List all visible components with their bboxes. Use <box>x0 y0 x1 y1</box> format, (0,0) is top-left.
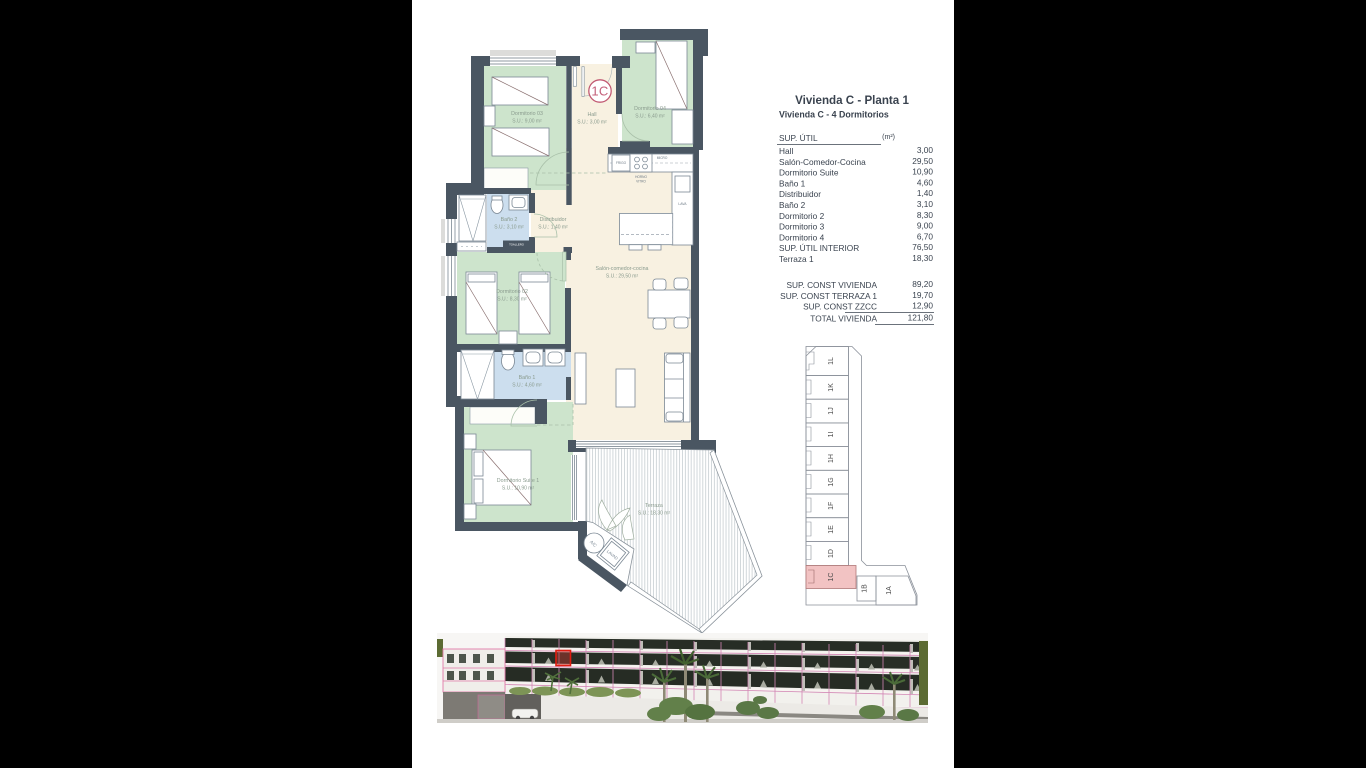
svg-text:12,90: 12,90 <box>912 301 933 311</box>
svg-text:HORNO: HORNO <box>635 175 647 179</box>
svg-text:1A: 1A <box>886 586 893 595</box>
svg-text:1H: 1H <box>828 454 835 463</box>
svg-text:MICRO: MICRO <box>657 156 668 160</box>
svg-text:1L: 1L <box>828 357 835 365</box>
svg-text:(m²): (m²) <box>882 134 895 141</box>
svg-text:Dormitorio 3: Dormitorio 3 <box>779 222 825 232</box>
svg-text:Distribuidor: Distribuidor <box>779 189 821 199</box>
svg-text:1G: 1G <box>828 477 835 486</box>
svg-text:Dormitorio 04: Dormitorio 04 <box>634 106 666 112</box>
svg-text:S.U.: 10,90 m²: S.U.: 10,90 m² <box>502 486 535 492</box>
svg-text:SUP. CONST VIVIENDA: SUP. CONST VIVIENDA <box>786 280 877 290</box>
svg-text:S.U.: 3,10 m²: S.U.: 3,10 m² <box>494 225 524 231</box>
svg-text:19,70: 19,70 <box>912 290 933 300</box>
svg-text:TOTAL VIVIENDA: TOTAL VIVIENDA <box>810 313 877 323</box>
svg-text:Dormitorio 03: Dormitorio 03 <box>511 111 543 117</box>
svg-text:1C: 1C <box>828 573 835 582</box>
svg-text:SUP. CONST ZZCC: SUP. CONST ZZCC <box>803 302 877 312</box>
svg-text:89,20: 89,20 <box>912 279 933 289</box>
svg-text:SUP. CONST TERRAZA 1: SUP. CONST TERRAZA 1 <box>780 291 877 301</box>
svg-text:Terraza: Terraza <box>645 503 663 509</box>
svg-text:Dormitorio Suite: Dormitorio Suite <box>779 168 839 178</box>
svg-text:Baño 1: Baño 1 <box>519 375 536 381</box>
svg-text:S.U.: 4,60 m²: S.U.: 4,60 m² <box>512 383 542 389</box>
svg-text:SUP. ÚTIL: SUP. ÚTIL <box>779 133 818 143</box>
svg-text:1D: 1D <box>828 549 835 558</box>
svg-text:Dormitorio 02: Dormitorio 02 <box>496 289 528 295</box>
svg-text:Vivienda C - Planta 1: Vivienda C - Planta 1 <box>795 94 909 107</box>
svg-text:TOALLERO: TOALLERO <box>509 242 525 246</box>
svg-text:Baño 2: Baño 2 <box>501 217 518 223</box>
svg-text:Distribuidor: Distribuidor <box>540 217 567 223</box>
svg-text:1,40: 1,40 <box>917 188 934 198</box>
svg-text:121,80: 121,80 <box>908 312 934 322</box>
svg-text:Baño 2: Baño 2 <box>779 200 806 210</box>
svg-text:8,30: 8,30 <box>917 210 934 220</box>
svg-text:Terraza 1: Terraza 1 <box>779 254 814 264</box>
svg-text:VITRO: VITRO <box>636 180 646 184</box>
svg-text:Vivienda C - 4 Dormitorios: Vivienda C - 4 Dormitorios <box>779 110 889 120</box>
svg-text:3,00: 3,00 <box>917 145 934 155</box>
svg-text:1F: 1F <box>828 502 835 510</box>
svg-text:76,50: 76,50 <box>912 242 933 252</box>
svg-text:1E: 1E <box>828 525 835 534</box>
svg-text:S.U.: 18,30 m²: S.U.: 18,30 m² <box>638 511 671 517</box>
svg-text:1J: 1J <box>828 407 835 414</box>
svg-text:1I: 1I <box>828 432 835 438</box>
svg-text:S.U.: 1,40 m²: S.U.: 1,40 m² <box>538 225 568 231</box>
svg-text:6,70: 6,70 <box>917 231 934 241</box>
svg-text:Hall: Hall <box>587 112 596 118</box>
svg-text:4,60: 4,60 <box>917 177 934 187</box>
svg-text:18,30: 18,30 <box>912 253 933 263</box>
svg-text:S.U.: 6,40 m²: S.U.: 6,40 m² <box>635 114 665 120</box>
svg-text:9,00: 9,00 <box>917 221 934 231</box>
svg-text:3,10: 3,10 <box>917 199 934 209</box>
svg-text:Baño 1: Baño 1 <box>779 178 806 188</box>
svg-text:S.U.: 9,00 m²: S.U.: 9,00 m² <box>512 119 542 125</box>
svg-text:S.U.: 29,50 m²: S.U.: 29,50 m² <box>606 274 639 280</box>
svg-text:Salón-Comedor-Cocina: Salón-Comedor-Cocina <box>779 157 866 167</box>
svg-text:10,90: 10,90 <box>912 167 933 177</box>
svg-text:1B: 1B <box>862 584 869 593</box>
svg-text:Dormitorio 4: Dormitorio 4 <box>779 232 825 242</box>
svg-text:FRIGO: FRIGO <box>616 161 627 165</box>
svg-text:Dormitorio Suite 1: Dormitorio Suite 1 <box>497 478 539 484</box>
svg-text:Salón-comedor-cocina: Salón-comedor-cocina <box>596 266 649 272</box>
svg-text:S.U.: 3,00 m²: S.U.: 3,00 m² <box>577 120 607 126</box>
svg-text:29,50: 29,50 <box>912 156 933 166</box>
svg-text:LAVA: LAVA <box>678 202 687 206</box>
svg-text:1K: 1K <box>828 383 835 392</box>
svg-text:Hall: Hall <box>779 146 793 156</box>
svg-text:SUP. ÚTIL INTERIOR: SUP. ÚTIL INTERIOR <box>779 243 859 253</box>
svg-text:S.U.: 8,30 m²: S.U.: 8,30 m² <box>497 297 527 303</box>
svg-text:Dormitorio 2: Dormitorio 2 <box>779 211 825 221</box>
svg-text:1C: 1C <box>591 84 608 99</box>
